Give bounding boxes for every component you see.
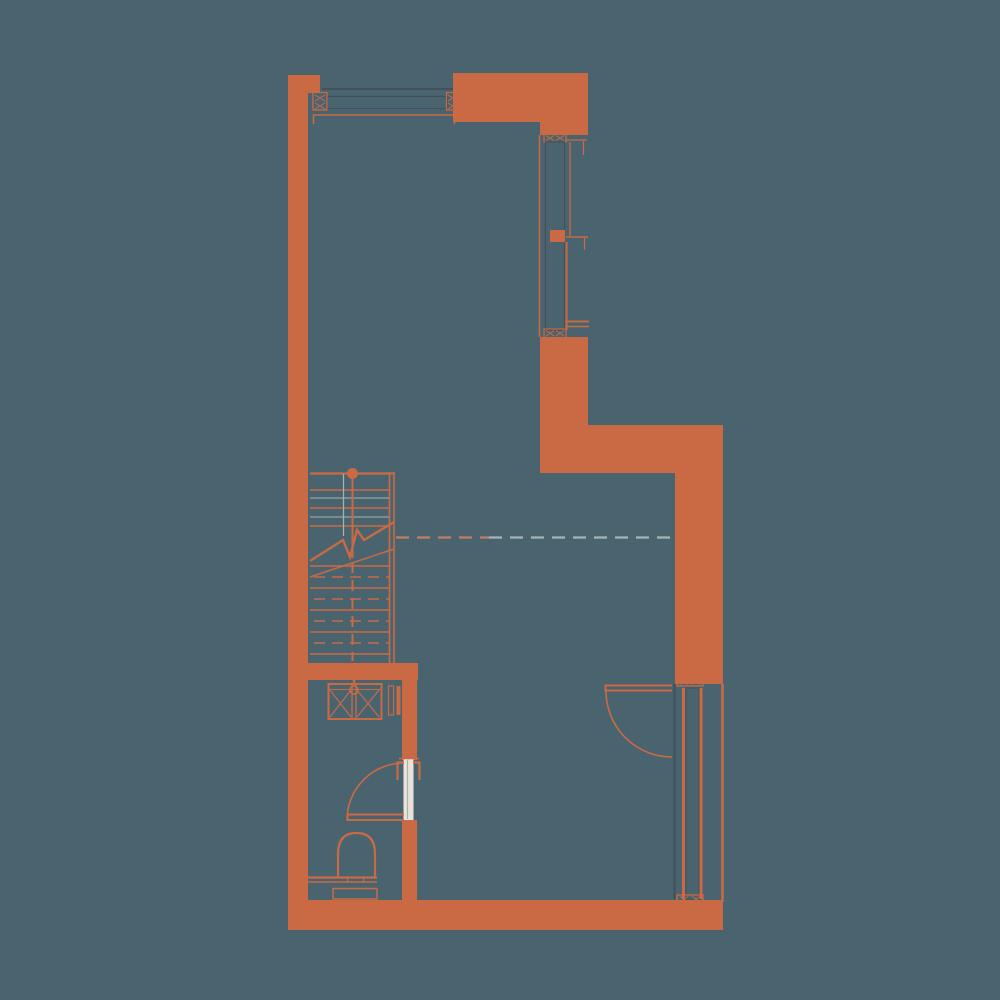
east-window xyxy=(540,134,590,338)
wc-jamb-marks xyxy=(389,686,401,715)
floor-plan-svg xyxy=(0,0,1000,1000)
stair-lower-treads xyxy=(310,566,389,654)
top-window-inner-trim xyxy=(314,115,455,124)
step-wall-band xyxy=(540,425,723,473)
floor-plan-canvas xyxy=(0,0,1000,1000)
wc-niche xyxy=(333,889,377,900)
top-left-pier xyxy=(288,75,320,93)
toilet xyxy=(308,833,377,882)
east-window-meeting-rail xyxy=(550,230,565,242)
top-window xyxy=(313,89,459,124)
left-exterior-wall xyxy=(288,75,308,930)
entry-door xyxy=(605,685,672,758)
staircase xyxy=(310,468,394,663)
top-right-wall xyxy=(453,73,588,122)
entry-sidelight-window xyxy=(675,677,723,904)
top-window-glazing xyxy=(328,97,448,109)
bottom-exterior-wall xyxy=(288,900,723,930)
wc-right-wall-upper xyxy=(402,663,417,760)
wc-door-hinge-bracket-right xyxy=(413,763,420,781)
east-lower-wall xyxy=(675,473,723,684)
toilet-bowl xyxy=(338,833,375,877)
wc-door-hinge-bracket-left xyxy=(398,763,405,781)
east-window-head xyxy=(544,134,566,142)
east-upper-wall xyxy=(540,122,588,135)
sidelight-glazing xyxy=(686,688,699,899)
entry-door-swing-arc xyxy=(606,691,672,757)
wc-door-swing-arc xyxy=(347,763,404,820)
wc-door xyxy=(347,758,420,821)
wc-door-opening xyxy=(404,758,414,820)
east-mid-wall xyxy=(540,337,588,425)
stair-upper-treads xyxy=(310,490,389,526)
top-window-jamb-left xyxy=(313,93,327,111)
wc-right-wall-lower xyxy=(402,820,417,905)
east-window-exterior-trim xyxy=(566,140,588,250)
